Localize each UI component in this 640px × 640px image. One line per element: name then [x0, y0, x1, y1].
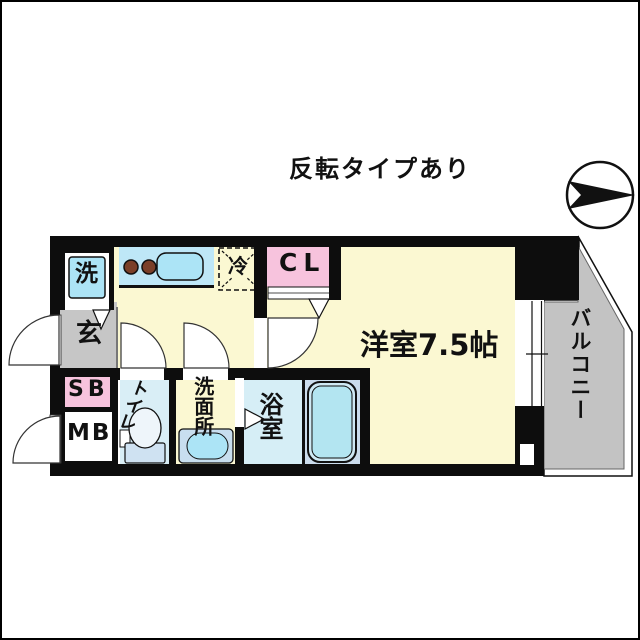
shoe-box-label: SB [68, 379, 109, 402]
kitchen-sink [157, 253, 203, 280]
wall-top [50, 236, 579, 247]
washer-box-opening [65, 301, 109, 310]
kitchen-counter-edge [119, 285, 214, 288]
wall-bath-room [360, 368, 370, 466]
closet-label: CL [279, 250, 325, 276]
page-title: 反転タイプあり [289, 157, 471, 182]
toilet-door-opening [120, 368, 164, 380]
balcony-label: バルコニー [568, 307, 590, 422]
floorplan-page: 反転タイプあり 洗 玄 SB MB トイレ 洗面所 浴室 冷 CL 洋室7.5帖… [0, 0, 640, 640]
washer-label: 洗 [75, 263, 98, 287]
bathtub-inner [312, 386, 352, 458]
wall-top-right-mass [515, 236, 579, 300]
wall-toilet-washroom [169, 376, 176, 466]
bath-door-opening [235, 378, 244, 427]
meter-box-label: MB [67, 422, 111, 446]
washroom-label: 洗面所 [192, 376, 213, 436]
compass-icon [567, 162, 635, 228]
stove-burner-icon [142, 260, 156, 274]
fridge-label: 冷 [228, 256, 248, 277]
entrance-step-line [116, 307, 118, 368]
wall-closet-stub [329, 245, 341, 300]
main-room-label: 洋室7.5帖 [360, 330, 498, 360]
entrance-door-arc [9, 315, 59, 365]
entrance-label: 玄 [76, 321, 102, 348]
room-door-opening [254, 318, 267, 368]
stove-burner-icon [124, 260, 138, 274]
wall-bottom [50, 464, 542, 476]
tub-platform-edge [302, 380, 305, 466]
wall-right-lower [515, 406, 544, 476]
washbasin-bowl [187, 433, 228, 459]
meter-box-door-arc [13, 416, 60, 463]
bathroom-label: 浴室 [256, 392, 281, 440]
wall-notch [520, 444, 534, 465]
